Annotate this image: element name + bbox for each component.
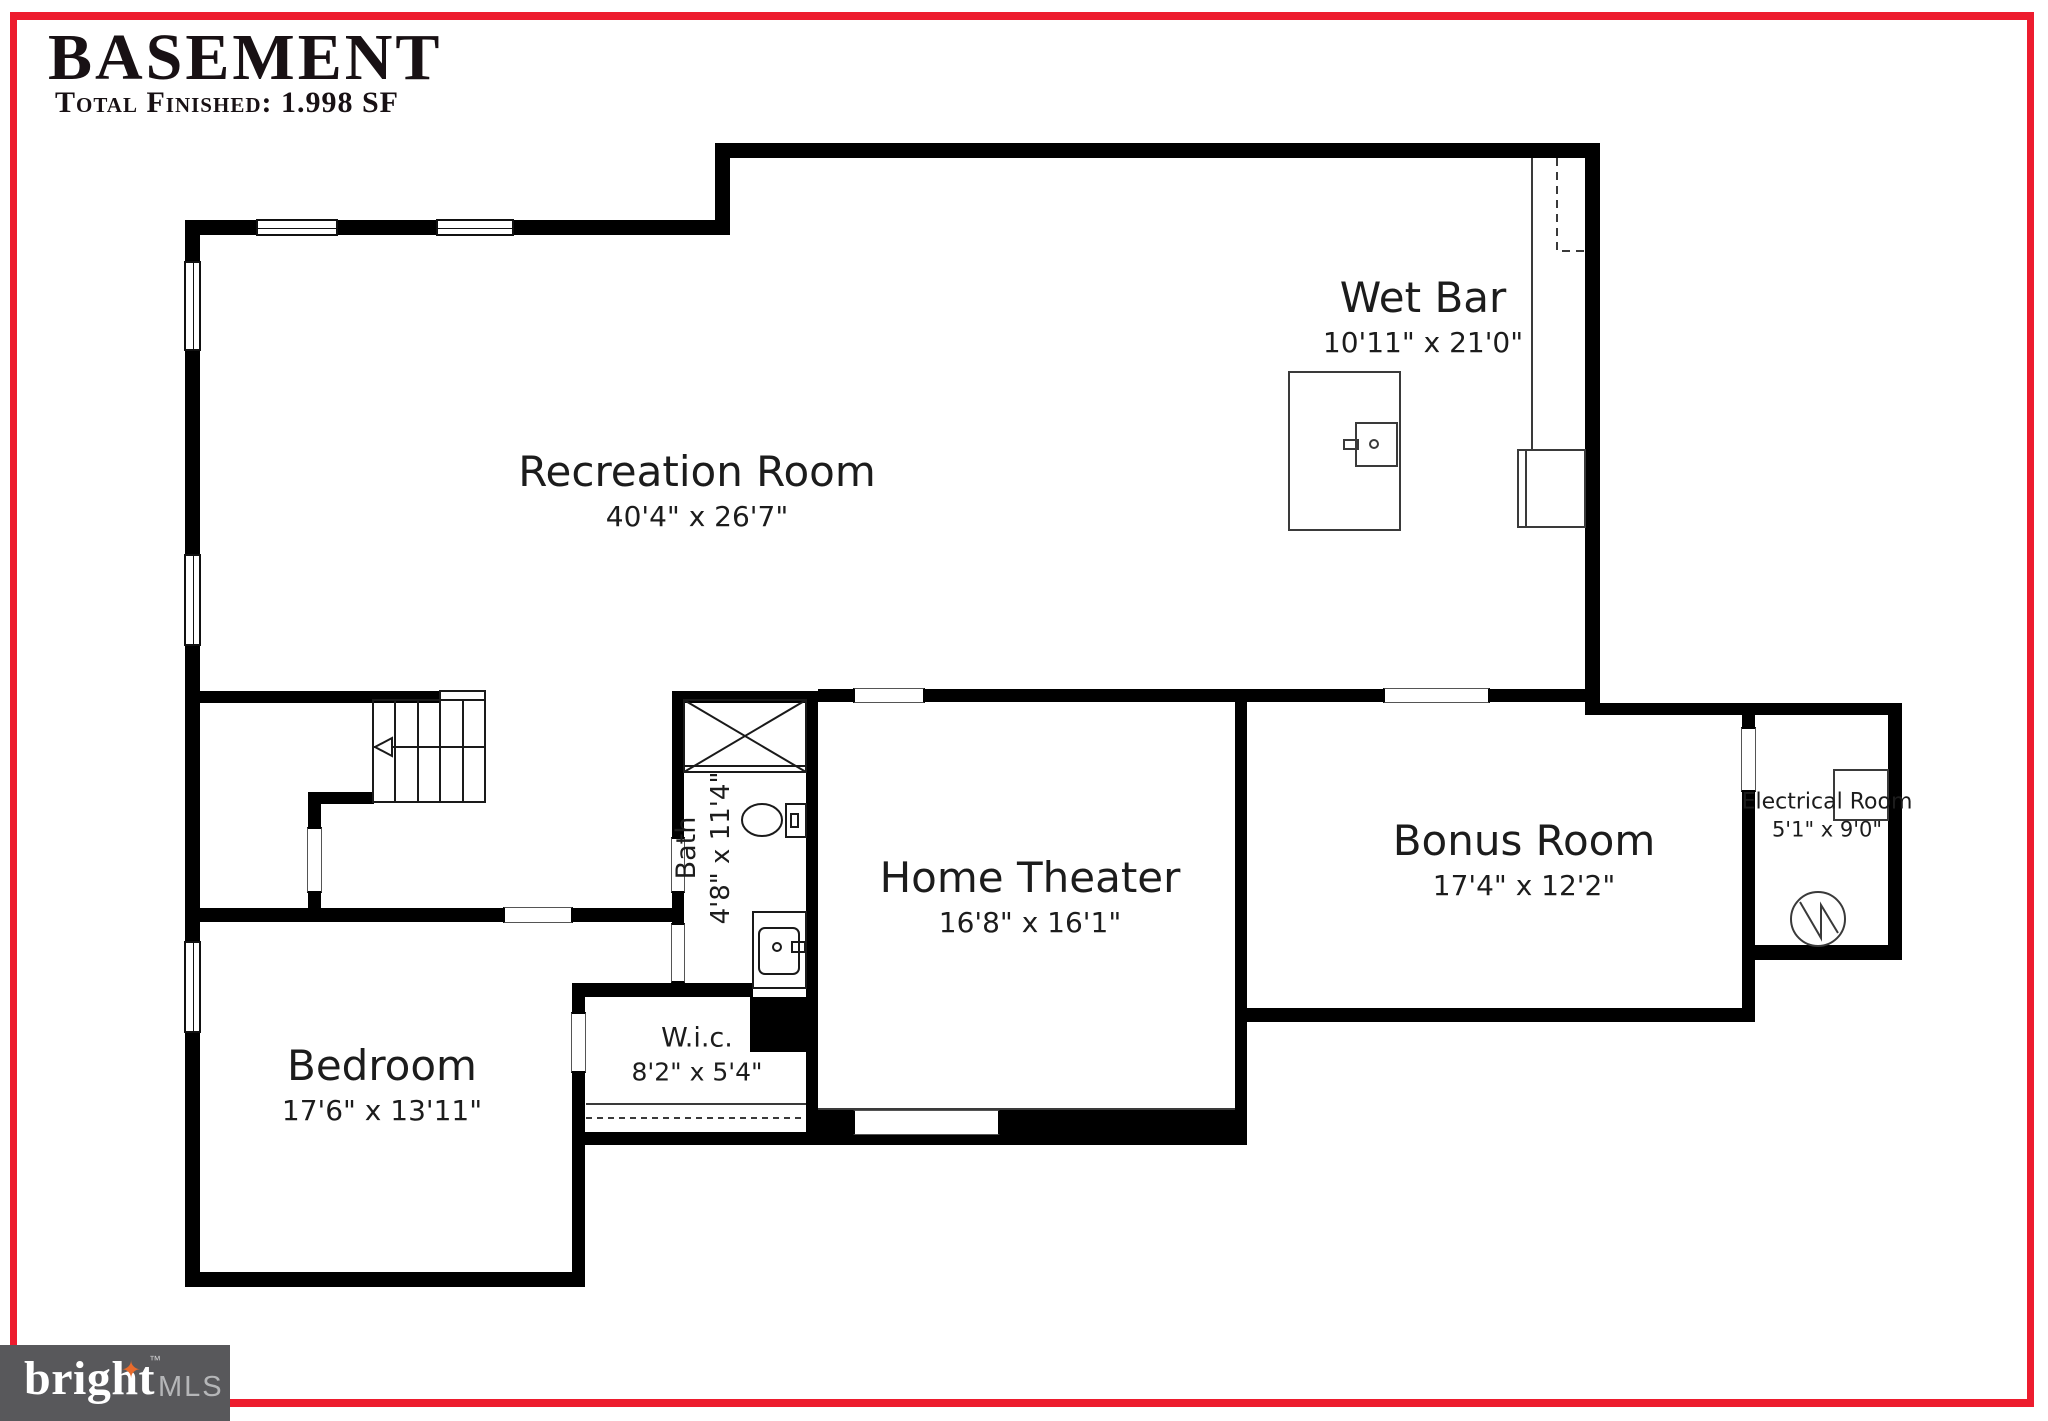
room-name: Wet Bar	[1323, 271, 1523, 325]
room-name: Bath	[670, 772, 705, 925]
room-label-electrical: Electrical Room 5'1" x 9'0"	[1742, 788, 1913, 843]
room-name: Recreation Room	[518, 445, 876, 499]
room-name: Bonus Room	[1393, 814, 1656, 868]
room-name: Bedroom	[282, 1039, 482, 1093]
logo-tm: ™	[149, 1353, 161, 1367]
electric-meter-icon	[1791, 892, 1845, 946]
closet-shelf	[586, 1104, 1235, 1118]
room-name: Home Theater	[880, 851, 1181, 905]
room-name: Electrical Room	[1742, 788, 1913, 816]
vanity-sink	[753, 912, 806, 988]
floor-plan-page: BASEMENT Total Finished: 1.998 SF	[0, 0, 2048, 1421]
toilet	[742, 804, 806, 837]
room-name: W.i.c.	[631, 1022, 762, 1057]
room-label-recreation: Recreation Room 40'4" x 26'7"	[518, 445, 876, 535]
room-label-home-theater: Home Theater 16'8" x 16'1"	[880, 851, 1181, 941]
staircase	[373, 691, 485, 802]
room-label-wic: W.i.c. 8'2" x 5'4"	[631, 1022, 762, 1089]
room-dims: 8'2" x 5'4"	[631, 1056, 762, 1088]
wet-bar-counter	[1518, 158, 1586, 527]
logo-suffix-text: MLS	[158, 1371, 224, 1404]
wet-bar-island	[1289, 372, 1400, 530]
room-dims: 16'8" x 16'1"	[880, 905, 1181, 941]
shower	[684, 700, 806, 772]
room-dims: 10'11" x 21'0"	[1323, 325, 1523, 361]
fixtures-layer	[0, 0, 2048, 1421]
room-dims: 5'1" x 9'0"	[1742, 817, 1913, 844]
room-label-wet-bar: Wet Bar 10'11" x 21'0"	[1323, 271, 1523, 361]
brightmls-logo: bright ✦ ™ MLS	[0, 1345, 230, 1421]
room-dims: 17'6" x 13'11"	[282, 1093, 482, 1129]
room-label-bonus: Bonus Room 17'4" x 12'2"	[1393, 814, 1656, 904]
room-dims: 4'8" x 11'4"	[705, 772, 738, 925]
room-dims: 40'4" x 26'7"	[518, 499, 876, 535]
room-dims: 17'4" x 12'2"	[1393, 868, 1656, 904]
room-label-bath: Bath 4'8" x 11'4"	[670, 772, 738, 925]
logo-spark-icon: ✦	[121, 1356, 141, 1384]
room-label-bedroom: Bedroom 17'6" x 13'11"	[282, 1039, 482, 1129]
